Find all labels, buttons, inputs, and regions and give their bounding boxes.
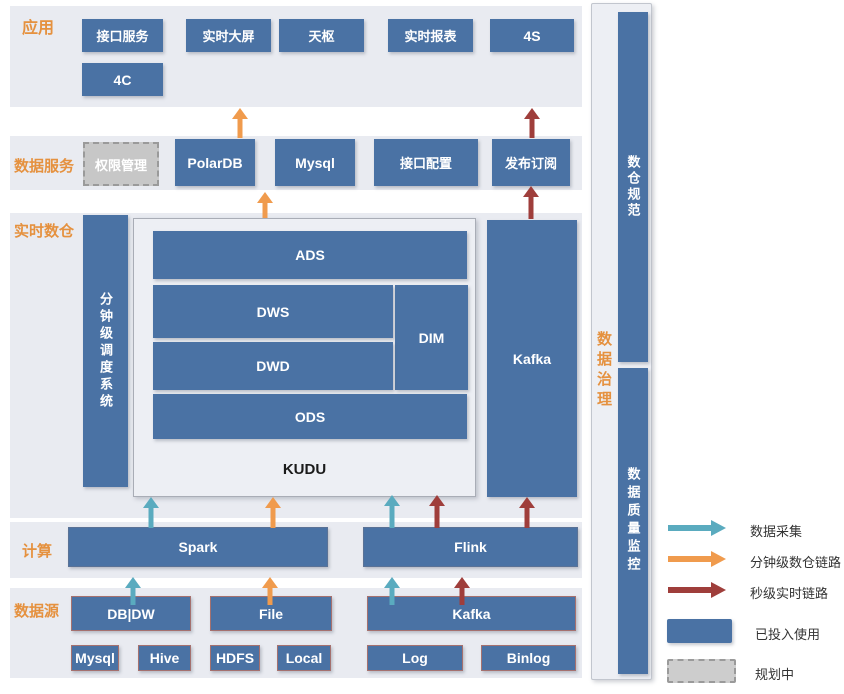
- box-kafka-warehouse: Kafka: [487, 220, 577, 497]
- arrow-kafka-to-flink-collect: [384, 577, 400, 605]
- box-data-quality-monitoring: 数据质量监控: [618, 368, 648, 674]
- section-realtime-warehouse: 实时数仓 分钟级调度系统 ADS DWS DIM DWD ODS KUDU Ka…: [10, 213, 582, 518]
- arrow-warehouse-to-services: [257, 192, 273, 218]
- box-publish-subscribe: 发布订阅: [492, 139, 570, 186]
- governance-label: 数据治理: [593, 331, 614, 411]
- box-mysql-source: Mysql: [71, 645, 119, 671]
- box-local: Local: [277, 645, 331, 671]
- box-hive: Hive: [138, 645, 191, 671]
- arrow-dbdw-to-spark: [125, 577, 141, 605]
- legend-in-use-label: 已投入使用: [755, 624, 820, 643]
- arrow-flink-to-kudu-collect: [384, 495, 400, 528]
- box-ods: ODS: [153, 394, 467, 439]
- legend-swatch-in-use-icon: [667, 619, 732, 643]
- legend-realtime-label: 秒级实时链路: [750, 583, 828, 602]
- minute-scheduler-label: 分钟级调度系统: [96, 292, 115, 411]
- box-dim: DIM: [395, 285, 468, 390]
- box-dwd: DWD: [153, 342, 393, 390]
- arrow-spark-to-kudu-collect: [143, 497, 159, 528]
- legend-arrow-collect-icon: [668, 520, 726, 536]
- box-minute-scheduler: 分钟级调度系统: [83, 215, 128, 487]
- box-log: Log: [367, 645, 463, 671]
- arrow-flink-to-kafka: [519, 497, 535, 528]
- arrow-file-to-spark: [262, 577, 278, 605]
- section-compute-label: 计算: [22, 540, 52, 561]
- section-data-sources-label: 数据源: [14, 600, 59, 621]
- kudu-storage-label: KUDU: [134, 442, 475, 496]
- arrow-flink-to-kudu-realtime: [429, 495, 445, 528]
- section-data-sources: 数据源 DB|DW File Kafka Mysql Hive HDFS Loc…: [10, 588, 582, 678]
- architecture-diagram: 应用 接口服务 实时大屏 天枢 实时报表 4S 4C 数据服务 权限管理 Pol…: [0, 0, 844, 694]
- legend-arrow-minute-icon: [668, 551, 726, 567]
- section-compute: 计算 Spark Flink: [10, 522, 582, 578]
- section-realtime-warehouse-label: 实时数仓: [14, 220, 74, 241]
- section-data-services-label: 数据服务: [14, 155, 74, 176]
- legend-collect-label: 数据采集: [750, 521, 802, 540]
- section-application-label: 应用: [22, 14, 54, 38]
- box-mysql-service: Mysql: [275, 139, 355, 186]
- box-permission-mgmt: 权限管理: [83, 142, 159, 186]
- box-spark: Spark: [68, 527, 328, 567]
- box-hdfs: HDFS: [210, 645, 260, 671]
- arrow-polardb-to-app: [232, 108, 248, 138]
- box-polardb: PolarDB: [175, 139, 255, 186]
- box-realtime-report: 实时报表: [388, 19, 473, 52]
- box-interface-service: 接口服务: [82, 19, 163, 52]
- box-flink: Flink: [363, 527, 578, 567]
- legend-planned-label: 规划中: [755, 664, 794, 683]
- box-binlog: Binlog: [481, 645, 576, 671]
- legend-arrow-realtime-icon: [668, 582, 726, 598]
- box-ads: ADS: [153, 231, 467, 279]
- box-realtime-dashboard: 实时大屏: [186, 19, 271, 52]
- section-application: 应用 接口服务 实时大屏 天枢 实时报表 4S 4C: [10, 6, 582, 107]
- legend-minute-label: 分钟级数仓链路: [750, 552, 841, 571]
- box-4c: 4C: [82, 63, 163, 96]
- legend-swatch-planned-icon: [667, 659, 736, 683]
- arrow-spark-to-kudu-minute: [265, 497, 281, 528]
- box-dws: DWS: [153, 285, 393, 338]
- box-tianshu: 天枢: [279, 19, 364, 52]
- governance-column: 数据治理 数仓规范 数据质量监控: [591, 3, 652, 680]
- warehouse-standards-label: 数仓规范: [624, 155, 643, 219]
- warehouse-layers-container: ADS DWS DIM DWD ODS KUDU: [133, 218, 476, 497]
- section-data-services: 数据服务 权限管理 PolarDB Mysql 接口配置 发布订阅: [10, 136, 582, 190]
- box-4s: 4S: [490, 19, 574, 52]
- box-warehouse-standards: 数仓规范: [618, 12, 648, 362]
- arrow-kafka-to-flink-realtime: [454, 577, 470, 605]
- box-interface-config: 接口配置: [374, 139, 478, 186]
- data-quality-monitoring-label: 数据质量监控: [624, 467, 643, 575]
- arrow-pubsub-to-app: [524, 108, 540, 138]
- arrow-kafka-to-pubsub: [523, 186, 539, 219]
